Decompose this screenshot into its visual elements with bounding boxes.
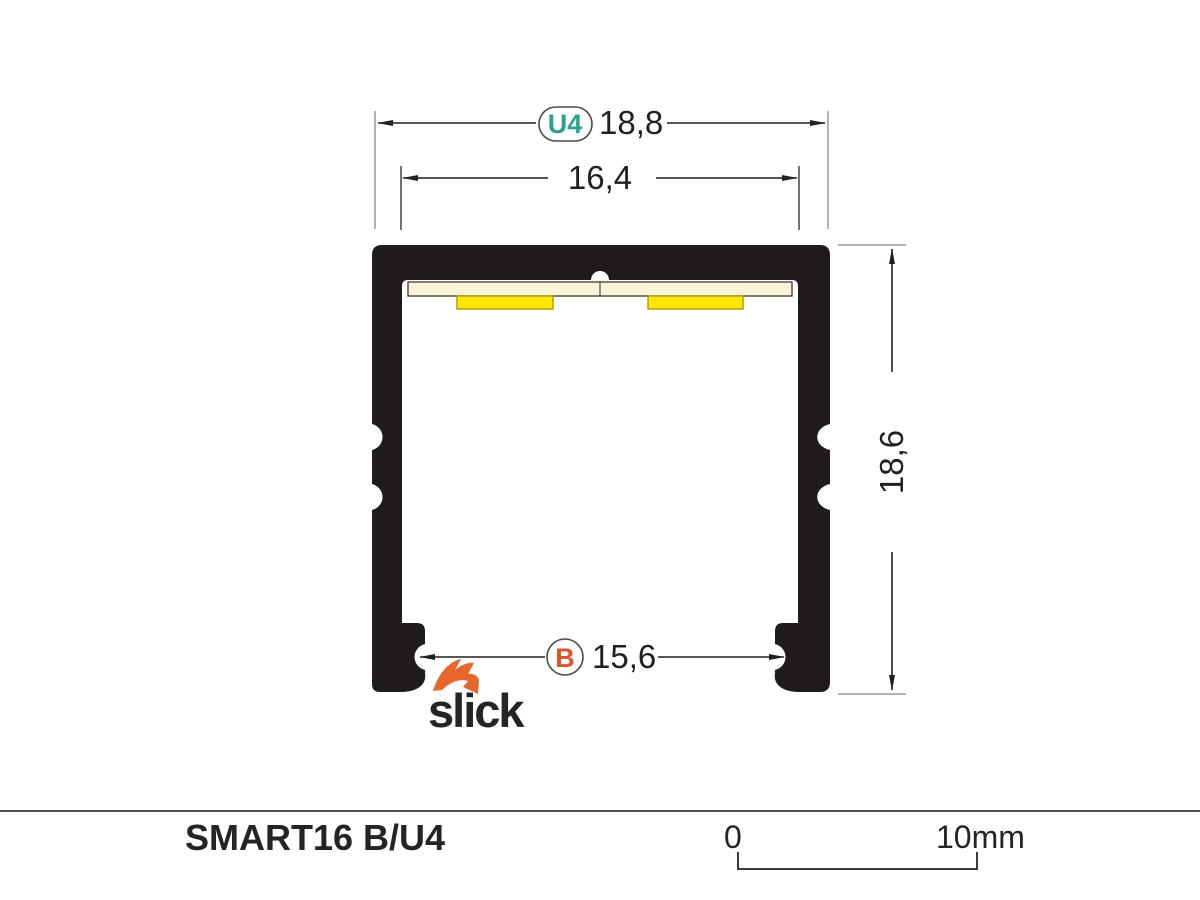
dim-value-bottom-opening: 15,6	[592, 638, 656, 675]
technical-drawing-page: U4 18,8 16,4 18,6 B 15,6 slick SMART16 B…	[0, 0, 1200, 900]
footer-divider	[0, 810, 1200, 812]
scale-start-label: 0	[724, 819, 742, 856]
badge-b-label: B	[555, 643, 575, 673]
led-chip-right	[648, 296, 743, 309]
profile-drawing: U4 18,8 16,4 18,6 B 15,6 slick	[0, 0, 1200, 810]
led-chip-left	[457, 296, 553, 309]
scale-bar	[737, 852, 978, 870]
dim-value-overall-width: 18,8	[599, 104, 663, 141]
dim-value-height: 18,6	[873, 430, 910, 494]
scale-end-label: 10mm	[936, 819, 1025, 856]
logo-wordmark: slick	[428, 684, 525, 737]
product-name: SMART16 B/U4	[185, 817, 445, 859]
profile-body	[372, 245, 830, 692]
badge-u4-label: U4	[548, 109, 583, 139]
dim-value-inner-width: 16,4	[568, 159, 632, 196]
